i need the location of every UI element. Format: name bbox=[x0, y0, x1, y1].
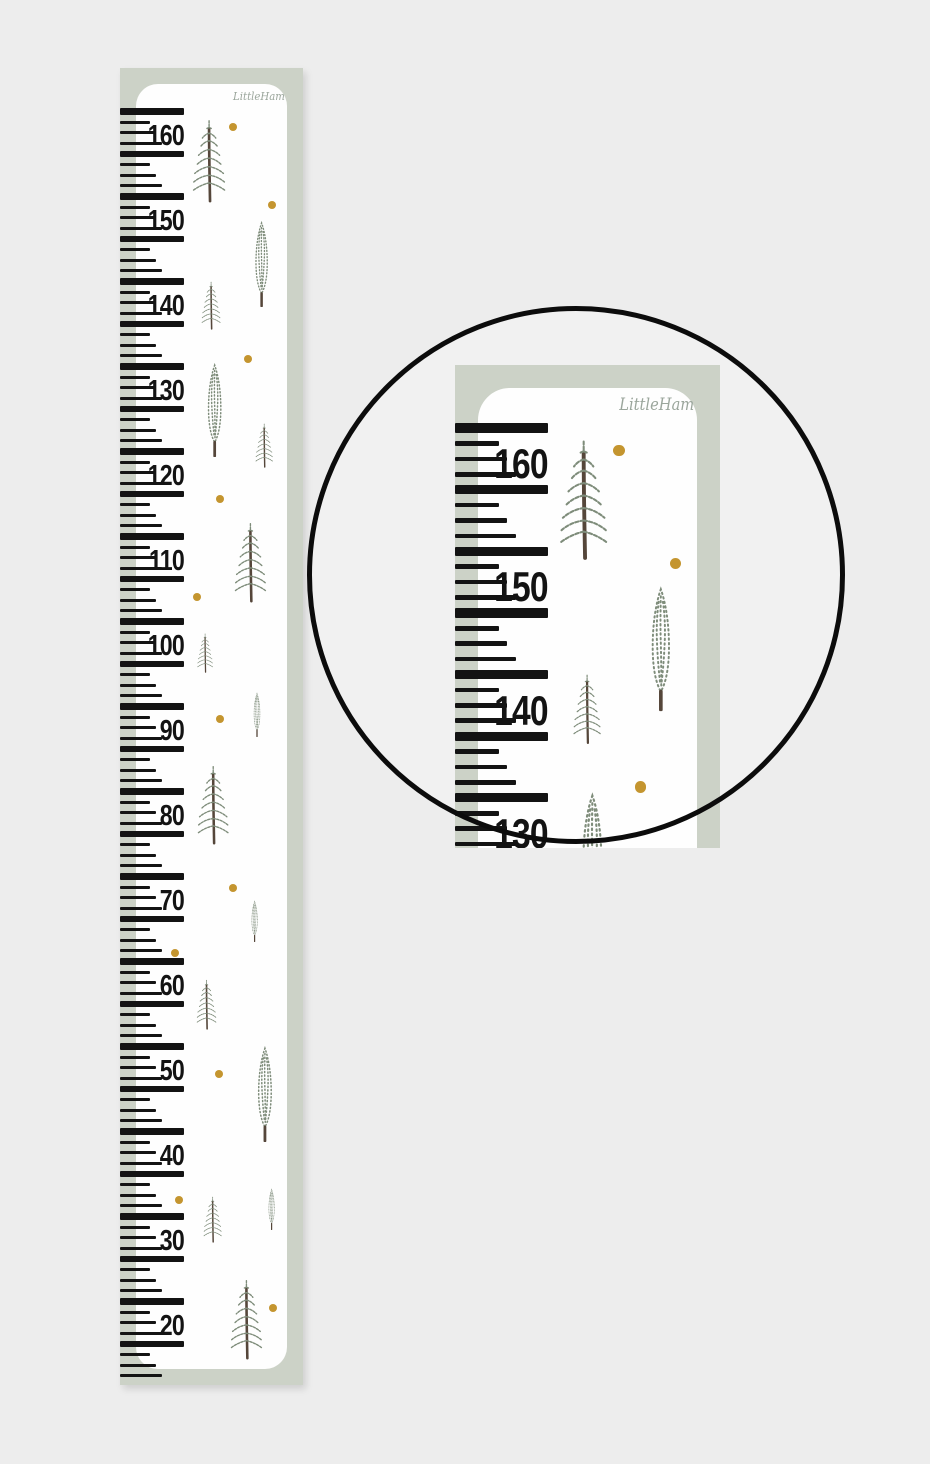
ruler-tick-minor bbox=[120, 163, 150, 166]
ruler-tick-minor bbox=[120, 864, 162, 867]
ruler-tick-minor bbox=[120, 524, 162, 527]
ruler-tick-minor bbox=[120, 503, 150, 506]
cypress-tree-icon bbox=[209, 365, 221, 456]
gold-dot-icon bbox=[229, 884, 237, 892]
ruler-number: 150 bbox=[474, 569, 548, 605]
ruler-tick-minor bbox=[120, 1353, 150, 1356]
ruler-number: 80 bbox=[133, 804, 184, 829]
cypress-tree-icon bbox=[252, 901, 257, 941]
cypress-tree-icon bbox=[653, 590, 669, 711]
ruler-tick-minor bbox=[120, 174, 156, 177]
ruler-tick-major bbox=[120, 278, 184, 284]
pine-tree-icon bbox=[561, 442, 608, 558]
ruler-tick-minor bbox=[455, 518, 507, 523]
gold-dot-icon bbox=[216, 495, 224, 503]
ruler-number: 130 bbox=[133, 379, 184, 404]
ruler-tick-major bbox=[455, 547, 548, 556]
ruler-number: 30 bbox=[133, 1229, 184, 1254]
ruler-tick-minor bbox=[120, 599, 156, 602]
cypress-tree-icon bbox=[256, 223, 267, 306]
ruler-tick-minor bbox=[120, 854, 156, 857]
ruler-number: 130 bbox=[474, 816, 548, 848]
brand-logo: LittleHam bbox=[619, 395, 694, 414]
pine-tree-icon bbox=[197, 634, 212, 672]
ruler-tick-minor bbox=[455, 657, 516, 662]
cypress-tree-icon bbox=[644, 585, 678, 711]
cypress-tree-icon bbox=[254, 694, 260, 737]
ruler-tick-minor bbox=[455, 641, 507, 646]
cypress-tree-icon bbox=[250, 220, 273, 307]
pine-tree-icon bbox=[193, 121, 225, 201]
gold-dot-icon bbox=[171, 949, 179, 957]
pine-tree-icon bbox=[556, 436, 611, 561]
ruler-tick-minor bbox=[120, 418, 150, 421]
ruler-tick-major bbox=[120, 1128, 184, 1134]
cypress-tree-icon bbox=[252, 1045, 278, 1142]
gold-dot-icon bbox=[215, 1070, 223, 1078]
ruler-tick-minor bbox=[120, 1194, 156, 1197]
ruler-tick-minor bbox=[120, 1183, 150, 1186]
ruler-tick-minor bbox=[455, 441, 499, 446]
ruler-tick-minor bbox=[120, 1024, 156, 1027]
ruler-number: 110 bbox=[133, 549, 184, 574]
ruler-number: 140 bbox=[474, 693, 548, 729]
ruler-tick-major bbox=[120, 788, 184, 794]
gold-dot-icon bbox=[268, 201, 276, 209]
ruler-tick-minor bbox=[120, 1374, 162, 1377]
cypress-tree-icon bbox=[269, 1189, 274, 1229]
ruler-tick-minor bbox=[120, 333, 150, 336]
ruler-tick-minor bbox=[455, 749, 499, 754]
ruler-number: 140 bbox=[133, 294, 184, 319]
ruler-tick-minor bbox=[120, 344, 156, 347]
ruler-tick-minor bbox=[120, 184, 162, 187]
ruler-tick-minor bbox=[455, 534, 516, 539]
cypress-tree-icon bbox=[259, 1048, 272, 1141]
gold-dot-icon bbox=[229, 123, 237, 131]
cypress-tree-icon bbox=[202, 362, 227, 457]
ruler-number: 40 bbox=[133, 1144, 184, 1169]
ruler-tick-minor bbox=[120, 769, 156, 772]
ruler-tick-minor bbox=[120, 1119, 162, 1122]
ruler-tick-minor bbox=[120, 1034, 162, 1037]
gold-dot-icon bbox=[175, 1196, 183, 1204]
ruler-tick-minor bbox=[120, 259, 156, 262]
pine-tree-icon bbox=[195, 978, 218, 1030]
ruler-tick-minor bbox=[120, 673, 150, 676]
ruler-tick-minor bbox=[120, 1098, 150, 1101]
ruler-tick-major bbox=[120, 618, 184, 624]
ruler-tick-major bbox=[120, 108, 184, 114]
pine-tree-icon bbox=[196, 632, 214, 673]
gold-dot-icon bbox=[635, 781, 647, 793]
gold-dot-icon bbox=[269, 1304, 277, 1312]
pine-tree-icon bbox=[204, 1197, 222, 1242]
gold-dot-icon bbox=[216, 715, 224, 723]
ruler-tick-minor bbox=[120, 1268, 150, 1271]
ruler-tick-major bbox=[120, 363, 184, 369]
pine-tree-icon bbox=[254, 422, 274, 468]
ruler-tick-minor bbox=[120, 1204, 162, 1207]
ruler-tick-minor bbox=[120, 1109, 156, 1112]
ruler-number: 60 bbox=[133, 974, 184, 999]
ruler-tick-minor bbox=[120, 758, 150, 761]
ruler-tick-minor bbox=[120, 248, 150, 251]
ruler-tick-major bbox=[120, 1213, 184, 1219]
gold-dot-icon bbox=[244, 355, 252, 363]
ruler-tick-minor bbox=[455, 811, 499, 816]
pine-tree-icon bbox=[255, 424, 272, 467]
ruler-tick-minor bbox=[455, 503, 499, 508]
gold-dot-icon bbox=[193, 593, 201, 601]
ruler-tick-major bbox=[120, 1043, 184, 1049]
ruler-tick-major bbox=[120, 958, 184, 964]
ruler-tick-major bbox=[120, 533, 184, 539]
cypress-tree-icon bbox=[584, 796, 602, 848]
ruler-tick-major bbox=[455, 670, 548, 679]
pine-tree-icon bbox=[202, 1195, 223, 1243]
ruler-number: 160 bbox=[474, 446, 548, 482]
pine-tree-icon bbox=[234, 524, 265, 601]
ruler-number: 90 bbox=[133, 719, 184, 744]
ruler-tick-minor bbox=[455, 626, 499, 631]
magnified-detail: LittleHam160150140130 bbox=[455, 365, 721, 848]
ruler-tick-minor bbox=[120, 939, 156, 942]
ruler-tick-minor bbox=[120, 949, 162, 952]
pine-tree-icon bbox=[200, 280, 222, 330]
ruler-tick-minor bbox=[120, 354, 162, 357]
pine-tree-icon bbox=[573, 676, 600, 744]
ruler-number: 50 bbox=[133, 1059, 184, 1084]
ruler-tick-major bbox=[120, 1298, 184, 1304]
ruler-tick-minor bbox=[120, 1364, 156, 1367]
ruler-tick-minor bbox=[120, 1279, 156, 1282]
pine-tree-icon bbox=[197, 980, 217, 1029]
ruler-tick-major bbox=[120, 448, 184, 454]
ruler-tick-minor bbox=[455, 688, 499, 693]
ruler-tick-minor bbox=[120, 1289, 162, 1292]
pine-tree-icon bbox=[232, 520, 269, 603]
pine-tree-icon bbox=[198, 767, 229, 844]
pine-tree-icon bbox=[190, 117, 228, 203]
ruler-tick-major bbox=[120, 193, 184, 199]
ruler-tick-minor bbox=[120, 1013, 150, 1016]
pine-tree-icon bbox=[228, 1277, 265, 1360]
ruler-frame: LittleHam160150140130 bbox=[455, 365, 720, 848]
ruler-tick-minor bbox=[120, 514, 156, 517]
cypress-tree-icon bbox=[249, 900, 260, 942]
ruler-tick-minor bbox=[120, 429, 156, 432]
pine-tree-icon bbox=[230, 1281, 261, 1358]
ruler-number: 160 bbox=[133, 124, 184, 149]
cypress-tree-icon bbox=[251, 692, 263, 737]
ruler-tick-minor bbox=[120, 439, 162, 442]
ruler-number: 150 bbox=[133, 209, 184, 234]
pine-tree-icon bbox=[202, 282, 221, 329]
cypress-tree-icon bbox=[574, 791, 611, 848]
ruler-number: 70 bbox=[133, 889, 184, 914]
ruler-tick-minor bbox=[455, 765, 507, 770]
ruler-tick-major bbox=[120, 873, 184, 879]
ruler-number: 100 bbox=[133, 634, 184, 659]
ruler-tick-minor bbox=[120, 269, 162, 272]
ruler-number: 120 bbox=[133, 464, 184, 489]
pine-tree-icon bbox=[571, 672, 603, 745]
ruler-tick-minor bbox=[120, 779, 162, 782]
ruler-number: 20 bbox=[133, 1314, 184, 1339]
ruler-tick-major bbox=[455, 423, 548, 432]
ruler-tick-minor bbox=[120, 843, 150, 846]
cypress-tree-icon bbox=[266, 1188, 277, 1230]
ruler-tick-minor bbox=[120, 928, 150, 931]
ruler-tick-minor bbox=[455, 780, 516, 785]
ruler-tick-major bbox=[455, 793, 548, 802]
ruler-tick-minor bbox=[120, 588, 150, 591]
ruler-tick-minor bbox=[120, 609, 162, 612]
ruler-tick-major bbox=[120, 703, 184, 709]
ruler-tick-minor bbox=[455, 564, 499, 569]
ruler-frame: LittleHam1601501401301201101009080706050… bbox=[120, 68, 303, 1385]
pine-tree-icon bbox=[195, 763, 231, 845]
gold-dot-icon bbox=[613, 445, 625, 457]
ruler-tick-minor bbox=[120, 694, 162, 697]
product-image: LittleHam1601501401301201101009080706050… bbox=[0, 0, 930, 1464]
brand-logo: LittleHam bbox=[233, 89, 285, 103]
ruler-tick-minor bbox=[120, 684, 156, 687]
